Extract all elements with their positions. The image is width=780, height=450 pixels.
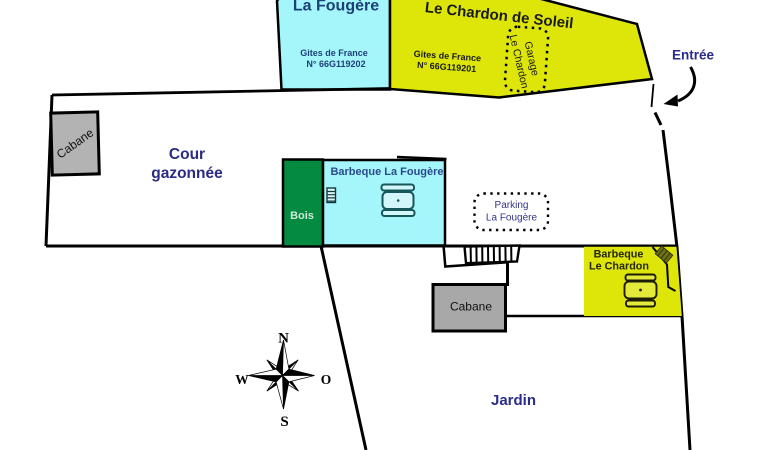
svg-text:Gites de France: Gites de France — [300, 48, 368, 58]
svg-text:W: W — [235, 372, 249, 387]
svg-text:N: N — [278, 331, 289, 347]
svg-text:Bois: Bois — [290, 210, 314, 222]
svg-text:gazonnée: gazonnée — [151, 165, 223, 182]
svg-text:La Fougère: La Fougère — [486, 213, 538, 224]
svg-text:Cour: Cour — [169, 146, 205, 163]
svg-text:O: O — [321, 372, 332, 387]
svg-text:Cabane: Cabane — [450, 300, 492, 314]
svg-text:Parking: Parking — [495, 200, 529, 211]
svg-text:S: S — [280, 414, 288, 430]
svg-text:N° 66G119202: N° 66G119202 — [306, 59, 365, 69]
svg-text:Jardin: Jardin — [491, 392, 536, 409]
svg-text:La Fougère: La Fougère — [293, 0, 379, 15]
svg-text:Entrée: Entrée — [672, 48, 715, 63]
svg-text:Barbeque: Barbeque — [594, 249, 644, 261]
svg-text:Le Chardon: Le Chardon — [589, 261, 649, 273]
svg-text:Barbeque La Fougère: Barbeque La Fougère — [330, 166, 443, 178]
